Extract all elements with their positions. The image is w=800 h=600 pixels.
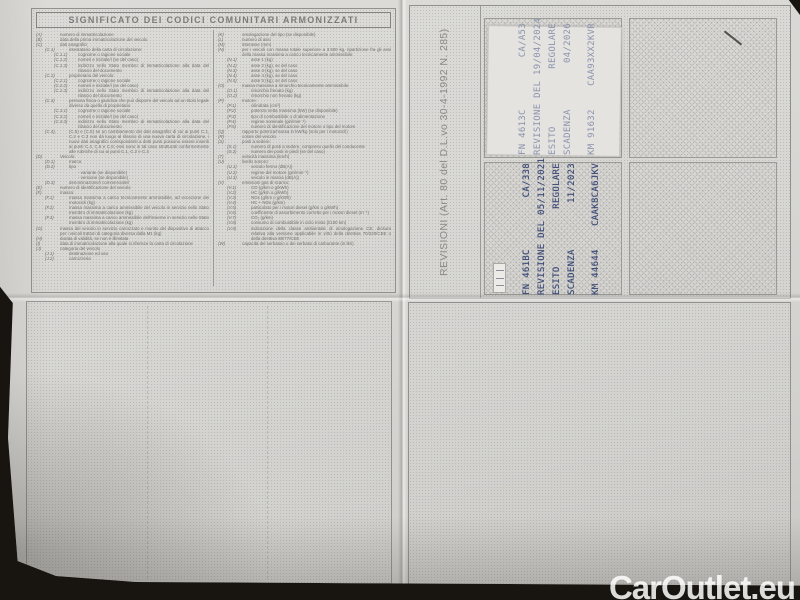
legend-item-code: (V.9): [227, 226, 251, 231]
stamp-line-left: KM 91632: [585, 109, 600, 155]
stamp-line-left: FN 4613C: [516, 109, 531, 155]
watermark: CarOutlet.eu: [609, 569, 795, 600]
stamp-line: ESITO REGOLARE: [550, 163, 565, 295]
stamp-line-right: REGOLARE: [546, 23, 561, 69]
pen-mark: [724, 30, 743, 45]
legend-item: (C.4), (C.5) e (C.6) se un cambiamento d…: [36, 129, 209, 154]
legend-item: (G) massa del veicolo in servizio carroz…: [36, 226, 209, 236]
legend-item-text: carrozzeria: [69, 256, 209, 261]
stamp-line-right: CA/A53: [516, 23, 531, 57]
legend-item-text: per i veicoli con massa totale superiore…: [242, 47, 391, 57]
revision-panel: REVISIONI (Art. 80 del D.L.vo 30-4-1992 …: [409, 5, 791, 299]
fold-crease-horizontal: [0, 293, 800, 302]
legend-item-code: (N): [218, 47, 242, 52]
legend-item: (C.3) persona fisica o giuridica che può…: [36, 98, 209, 108]
legend-item-code: (C.3.3): [54, 119, 78, 124]
stamp-line-right: CAAK8CA6JKV: [589, 163, 604, 226]
stamp-line-right: CA/338: [520, 163, 535, 197]
stamp-line-right: REGOLARE: [550, 163, 565, 209]
legend-panel: SIGNIFICATO DEI CODICI COMUNITARI ARMONI…: [31, 8, 396, 293]
legend-item-code: (C.1.3): [54, 63, 78, 68]
legend-item-code: (F.2): [45, 205, 69, 210]
legend-item-text: indirizzo nello Stato membro di immatric…: [78, 119, 209, 129]
stamp-line-left: SCADENZA: [561, 109, 576, 155]
stamp-line-left: REVISIONE DEL 05/11/2021: [535, 158, 550, 295]
legend-item: (C.3.3) indirizzo nello Stato membro di …: [36, 119, 209, 129]
stamp-line-left: REVISIONE DEL 19/04/2024: [531, 18, 546, 155]
legend-item-code: (C.4),: [45, 129, 69, 134]
legend-item: (J.2) carrozzeria: [36, 256, 209, 261]
legend-item-text: capacità del serbatoio o dei serbatoi di…: [242, 241, 391, 246]
stamp-line: FN 4613C CA/A53: [516, 23, 531, 155]
stamp-line: SCADENZA 11/2023: [565, 163, 580, 295]
revision-panel-divider: [480, 6, 481, 298]
legend-item-text: massa massima a carico ammissibile del v…: [69, 205, 209, 215]
legend-column-left: (A) numero di immatricolazione (B) data …: [32, 30, 213, 288]
legend-item-code: (C.3): [45, 98, 69, 103]
stamp-line: FN 461BC CA/338: [520, 163, 535, 295]
legend-item: (F.3) massa massima a carico ammissibile…: [36, 215, 209, 225]
stamp-line-right: CAA93XX2KVR: [585, 23, 600, 86]
stamp-line: REVISIONE DEL 19/04/2024: [531, 23, 546, 155]
stamp-line: ESITO REGOLARE: [546, 23, 561, 155]
legend-item-code: (J.2): [45, 256, 69, 261]
legend-item: (C.1.3) indirizzo nello Stato membro di …: [36, 63, 209, 73]
legend-column-right: (K) omologazione del tipo (se disponibil…: [214, 30, 395, 288]
legend-columns: (A) numero di immatricolazione (B) data …: [32, 30, 395, 288]
stamp-line-left: SCADENZA: [565, 249, 580, 295]
empty-cell-bottom: [629, 162, 777, 295]
legend-item-code: (G): [36, 226, 60, 231]
revision-stamp-2021: FN 461BC CA/338 REVISIONE DEL 05/11/2021…: [520, 163, 604, 295]
legend-item-code: (F.3): [45, 215, 69, 220]
bottom-right-box: [408, 302, 791, 589]
legend-item-text: indicazione della classe ambientale di o…: [251, 226, 391, 241]
revision-stamp-2024: FN 4613C CA/A53 REVISIONE DEL 19/04/2024…: [516, 23, 600, 155]
legend-item: (F.1) massa massima a carico tecnicament…: [36, 195, 209, 205]
bottom-left-box: [26, 301, 392, 584]
stamp-line-left: ESITO: [546, 126, 561, 155]
legend-item-text: persona fisica o giuridica che può dispo…: [69, 98, 209, 108]
legend-item-code: (C.2.3): [54, 88, 78, 93]
stamp-line-right: 04/2026: [561, 23, 576, 63]
stamp-line-left: ESITO: [550, 266, 565, 295]
legend-item-text: indirizzo nello Stato membro di immatric…: [78, 88, 209, 98]
legend-item-text: massa massima a carico tecnicamente ammi…: [69, 195, 209, 205]
legend-title: SIGNIFICATO DEI CODICI COMUNITARI ARMONI…: [69, 15, 359, 25]
legend-item-text: indirizzo nello Stato membro di immatric…: [78, 63, 209, 73]
legend-item: (F.2) massa massima a carico ammissibile…: [36, 205, 209, 215]
stamp-line: REVISIONE DEL 05/11/2021: [535, 163, 550, 295]
stamp-line: KM 44644 CAAK8CA6JKV: [589, 163, 604, 295]
legend-item-code: (F.1): [45, 195, 69, 200]
legend-title-box: SIGNIFICATO DEI CODICI COMUNITARI ARMONI…: [36, 12, 391, 28]
document-paper: SIGNIFICATO DEI CODICI COMUNITARI ARMONI…: [0, 0, 800, 600]
stamp-line-left: KM 44644: [589, 249, 604, 295]
stamp-sticker-label: [493, 263, 506, 293]
legend-item-text: massa massima a carico ammissibile dell'…: [69, 215, 209, 225]
legend-item: (V.9) indicazione della classe ambiental…: [218, 226, 391, 241]
legend-item: (W) capacità del serbatoio o dei serbato…: [218, 241, 391, 246]
stamp-line: SCADENZA 04/2026: [561, 23, 576, 155]
legend-item-text: (C.5) e (C.6) se un cambiamento dei dati…: [69, 129, 209, 154]
stamp-line-left: FN 461BC: [520, 249, 535, 295]
legend-item-code: (D.2): [45, 164, 69, 169]
stamp-line: KM 91632 CAA93XX2KVR: [585, 23, 600, 155]
revision-side-label: REVISIONI (Art. 80 del D.L.vo 30-4-1992 …: [438, 66, 452, 276]
photo-background: SIGNIFICATO DEI CODICI COMUNITARI ARMONI…: [0, 0, 800, 600]
legend-item-code: (W): [218, 241, 242, 246]
empty-cell-top: [629, 18, 777, 158]
legend-item: (N) per i veicoli con massa totale super…: [218, 47, 391, 57]
stamp-line-right: 11/2023: [565, 163, 580, 203]
legend-item: (C.2.3) indirizzo nello Stato membro di …: [36, 88, 209, 98]
legend-item-text: massa del veicolo in servizio carrozzato…: [60, 226, 209, 236]
